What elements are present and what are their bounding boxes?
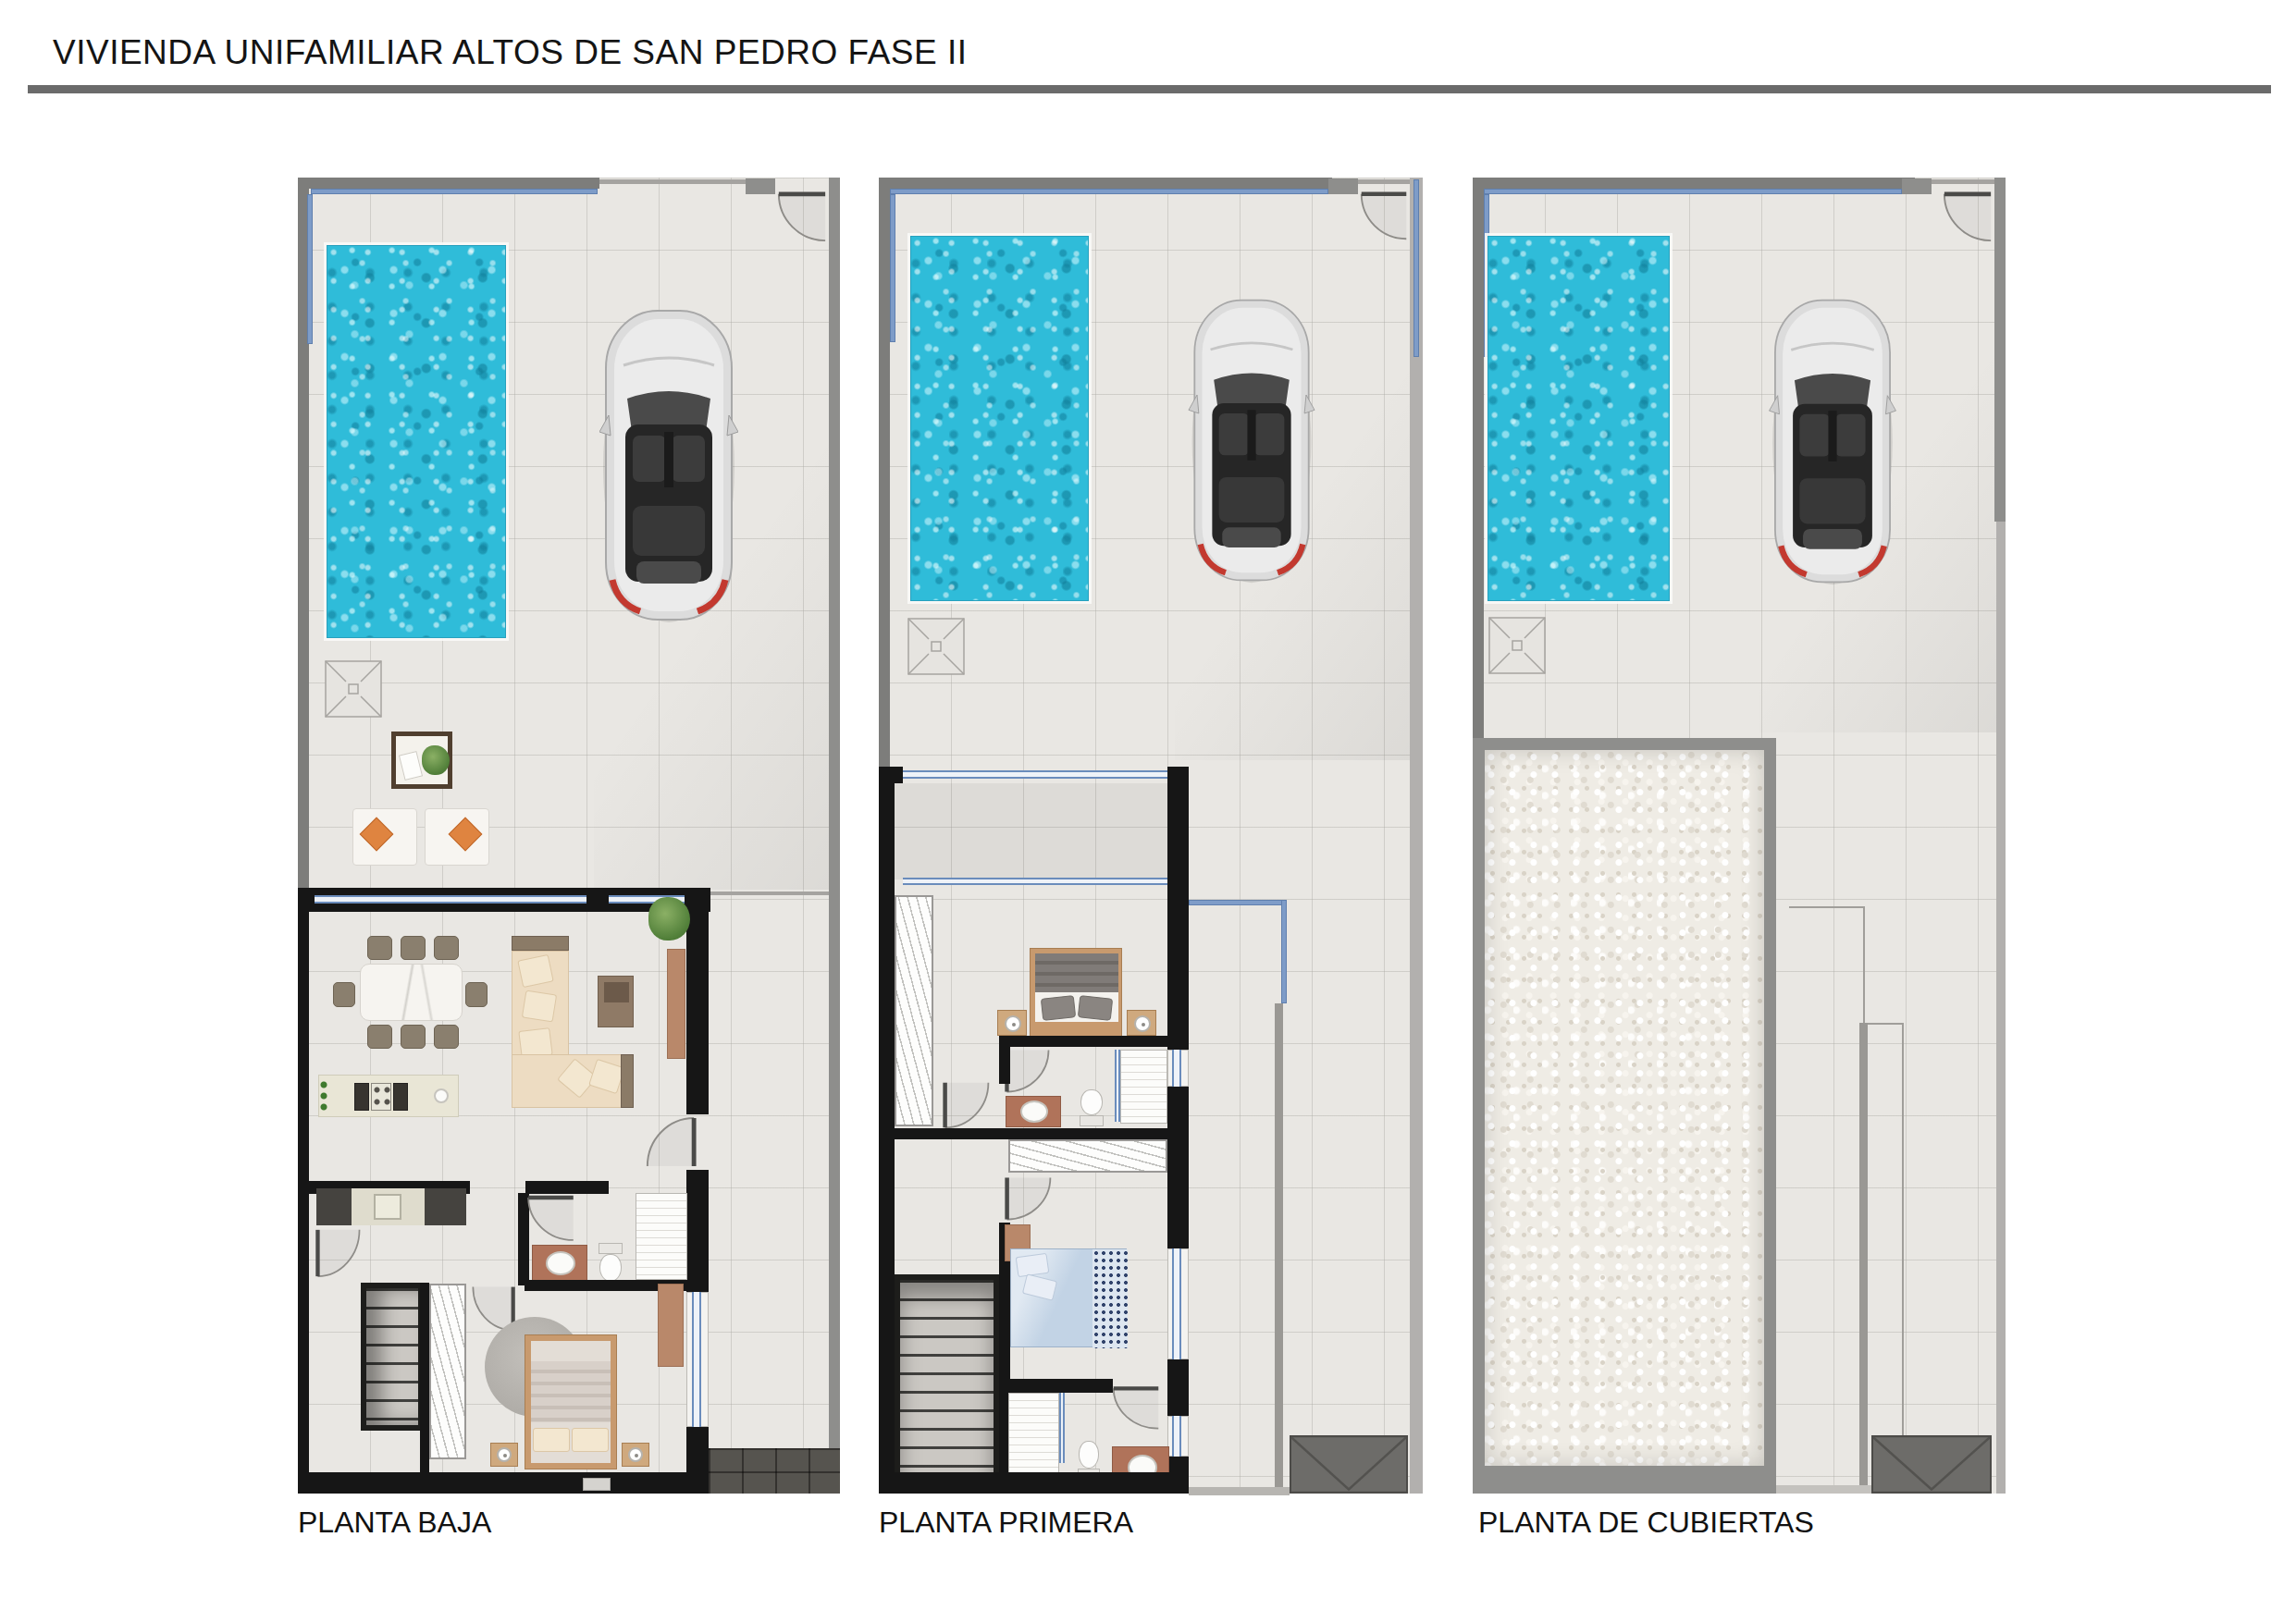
covered-terrace (895, 783, 1167, 879)
wall (1167, 783, 1189, 1050)
window (1172, 1248, 1181, 1359)
terrace-planter (391, 732, 452, 789)
sink (546, 1251, 575, 1275)
double-bed (525, 1334, 617, 1469)
toilet (597, 1243, 624, 1284)
wall (686, 1170, 709, 1292)
glass-fence (311, 189, 598, 194)
wall (1167, 1087, 1189, 1248)
swimming-pool (910, 236, 1089, 601)
nightstand (622, 1443, 649, 1467)
glass-fence (1484, 189, 1902, 194)
window (1172, 1416, 1181, 1457)
wall (298, 1472, 709, 1494)
wall (1189, 1487, 1290, 1495)
wardrobe (895, 895, 933, 1126)
double-bed (1030, 948, 1122, 1037)
wall (1010, 1379, 1113, 1393)
roof-edge-line (1863, 1023, 1904, 1025)
floor-drain-icon (1487, 616, 1547, 675)
wall (525, 1181, 609, 1194)
chair (401, 936, 426, 960)
chair (465, 982, 488, 1007)
wall (599, 179, 746, 184)
car-icon (599, 305, 738, 625)
nightstand (997, 1010, 1027, 1036)
wall (1410, 357, 1423, 1494)
wall (879, 1128, 1189, 1139)
toilet (1078, 1089, 1105, 1128)
roof-edge-line (1863, 906, 1865, 1023)
nightstand (490, 1443, 518, 1467)
wardrobe (429, 1284, 466, 1459)
car-icon (1763, 296, 1902, 586)
wall (1473, 1478, 1776, 1494)
sun-lounger (352, 808, 417, 866)
double-bed (1010, 1248, 1127, 1347)
wall (1167, 1359, 1189, 1416)
floor-plan-planta-primera (879, 178, 1423, 1494)
door-swing-icon (1110, 1385, 1162, 1432)
door-swing-icon (525, 1195, 577, 1244)
roof-edge-line (1902, 1023, 1904, 1478)
sun-lounger (425, 808, 489, 866)
chair (434, 936, 459, 960)
shower-glass (1059, 1393, 1065, 1463)
closet (1008, 1139, 1167, 1173)
door-swing-icon (942, 1079, 992, 1131)
wall (879, 178, 890, 768)
door-header (1328, 178, 1358, 194)
wall (879, 178, 1332, 189)
wall (298, 178, 599, 189)
wall (1275, 1003, 1283, 1494)
deco-tray (399, 751, 423, 781)
fence-line (710, 891, 829, 895)
glass-railing (1281, 900, 1287, 1003)
plant-icon (648, 897, 690, 941)
door-swing-icon (315, 1226, 363, 1280)
sofa-headrest (512, 936, 569, 951)
entrance-mat (583, 1478, 611, 1491)
shower-glass (1115, 1050, 1120, 1122)
kitchen-counter (425, 1188, 466, 1225)
cushion (449, 818, 483, 852)
chair (367, 1025, 392, 1049)
window (903, 878, 1167, 885)
stairs (895, 1274, 999, 1480)
floor-plan-planta-cubiertas (1473, 178, 2006, 1494)
dining-table (360, 964, 463, 1021)
door-header (1902, 178, 1932, 194)
bathroom-vanity (1006, 1096, 1061, 1127)
shower (636, 1193, 687, 1280)
gravel-flat-roof (1473, 738, 1776, 1478)
plan-label-planta-cubiertas: PLANTA DE CUBIERTAS (1478, 1506, 1814, 1540)
window (692, 1292, 701, 1427)
title-rule (28, 85, 2271, 93)
wall (298, 890, 309, 1494)
tv-sideboard (667, 949, 685, 1059)
chair (333, 982, 355, 1007)
plant-icon (422, 745, 450, 775)
floor-drain-icon (907, 616, 966, 677)
glass-railing (1189, 900, 1285, 905)
sofa (512, 1054, 634, 1108)
coffee-table (598, 976, 634, 1027)
car-icon (1182, 296, 1321, 584)
plan-sheet: VIVIENDA UNIFAMILIAR ALTOS DE SAN PEDRO … (0, 0, 2296, 1623)
wall (999, 1036, 1010, 1084)
chair (434, 1025, 459, 1049)
wall (879, 767, 903, 783)
plan-label-planta-baja: PLANTA BAJA (298, 1506, 491, 1540)
plant-icon (319, 1079, 328, 1114)
entrance-porch (709, 1448, 840, 1494)
kitchen-island (318, 1075, 459, 1117)
plan-label-planta-primera: PLANTA PRIMERA (879, 1506, 1133, 1540)
glass-fence (307, 194, 313, 344)
chair (367, 936, 392, 960)
stairs (361, 1283, 424, 1431)
floor-plan-planta-baja (298, 178, 840, 1494)
glass-fence (890, 194, 895, 342)
entrance-canopy-icon (1290, 1435, 1408, 1494)
wall (1859, 1023, 1868, 1494)
wall (999, 1036, 1189, 1047)
entrance-canopy-icon (1871, 1435, 1992, 1494)
cushion (360, 818, 394, 852)
bathroom-vanity (532, 1245, 587, 1282)
wall (686, 1427, 709, 1472)
chair (401, 1025, 426, 1049)
wall (1996, 522, 2006, 1494)
door-swing-icon (1941, 191, 1994, 244)
kitchen-counter (316, 1188, 352, 1225)
nightstand (1127, 1010, 1156, 1036)
roof-edge-line (1789, 906, 1863, 908)
shower (1008, 1393, 1059, 1485)
wall (1776, 1485, 1871, 1494)
door-swing-icon (1358, 191, 1410, 242)
wall (1473, 178, 1915, 189)
window (903, 770, 1167, 779)
door-swing-icon (644, 1114, 697, 1170)
door-swing-icon (1004, 1174, 1054, 1223)
door-swing-icon (1004, 1047, 1052, 1095)
door-header (746, 178, 775, 194)
shower (1120, 1050, 1167, 1124)
dresser (658, 1284, 684, 1367)
swimming-pool (1487, 236, 1670, 601)
wall (420, 1283, 429, 1472)
glass-fence (1413, 179, 1419, 357)
sink (1020, 1100, 1048, 1123)
wall (879, 1472, 1189, 1494)
glass-fence (890, 189, 1328, 194)
window (1172, 1050, 1181, 1087)
wall (1994, 178, 2006, 522)
kitchen-sink (374, 1194, 401, 1220)
wall (829, 178, 840, 1448)
page-title: VIVIENDA UNIFAMILIAR ALTOS DE SAN PEDRO … (53, 33, 968, 72)
sofa-armrest (621, 1054, 634, 1108)
wall (1167, 767, 1189, 783)
window (315, 895, 586, 904)
floor-drain-icon (324, 658, 383, 719)
door-swing-icon (775, 191, 829, 244)
swimming-pool (327, 245, 506, 638)
